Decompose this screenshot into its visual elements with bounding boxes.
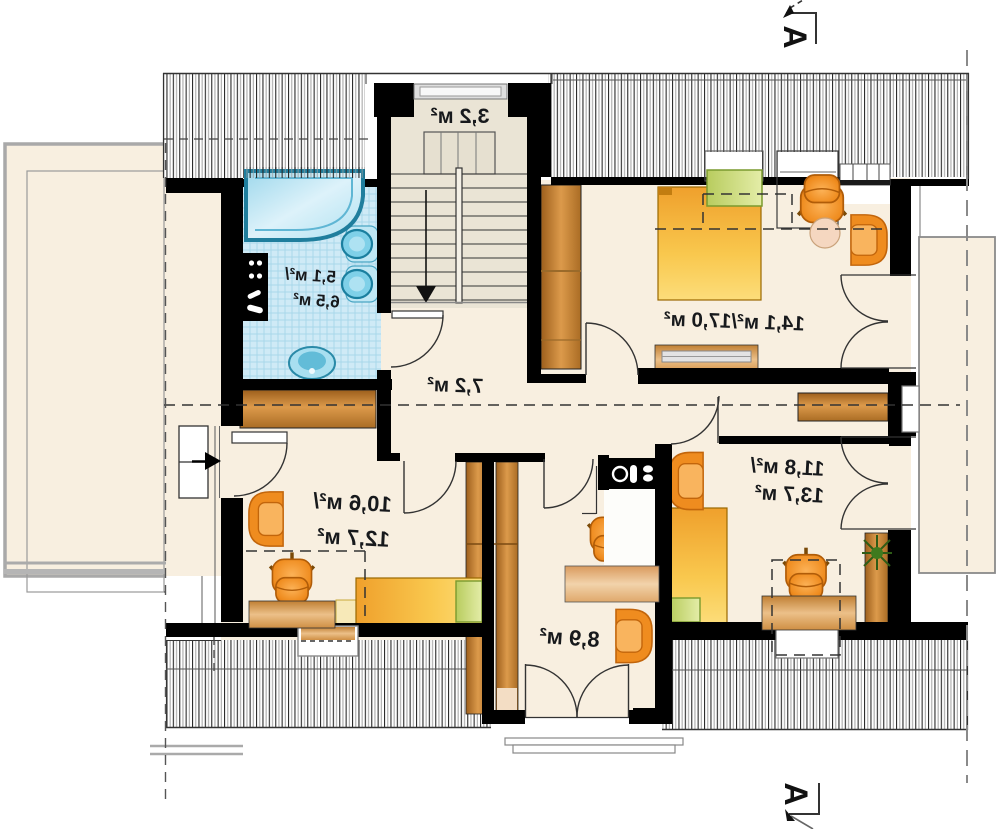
- svg-text:7,2 м²: 7,2 м²: [427, 373, 484, 398]
- svg-text:A: A: [777, 25, 813, 48]
- svg-text:3,2 м²: 3,2 м²: [431, 104, 490, 128]
- svg-text:14,1 м²/17,0 м²: 14,1 м²/17,0 м²: [663, 308, 805, 336]
- svg-text:13,7 м²: 13,7 м²: [754, 481, 824, 508]
- svg-text:11,8 м²/: 11,8 м²/: [750, 454, 825, 481]
- svg-text:8,9 м²: 8,9 м²: [539, 623, 601, 652]
- svg-text:12,7 м²: 12,7 м²: [317, 523, 391, 552]
- svg-text:5,1 м²/: 5,1 м²/: [284, 264, 337, 287]
- svg-text:A: A: [778, 782, 814, 805]
- svg-text:10,6 м²/: 10,6 м²/: [312, 488, 392, 517]
- svg-text:6,5 м²: 6,5 м²: [292, 289, 340, 311]
